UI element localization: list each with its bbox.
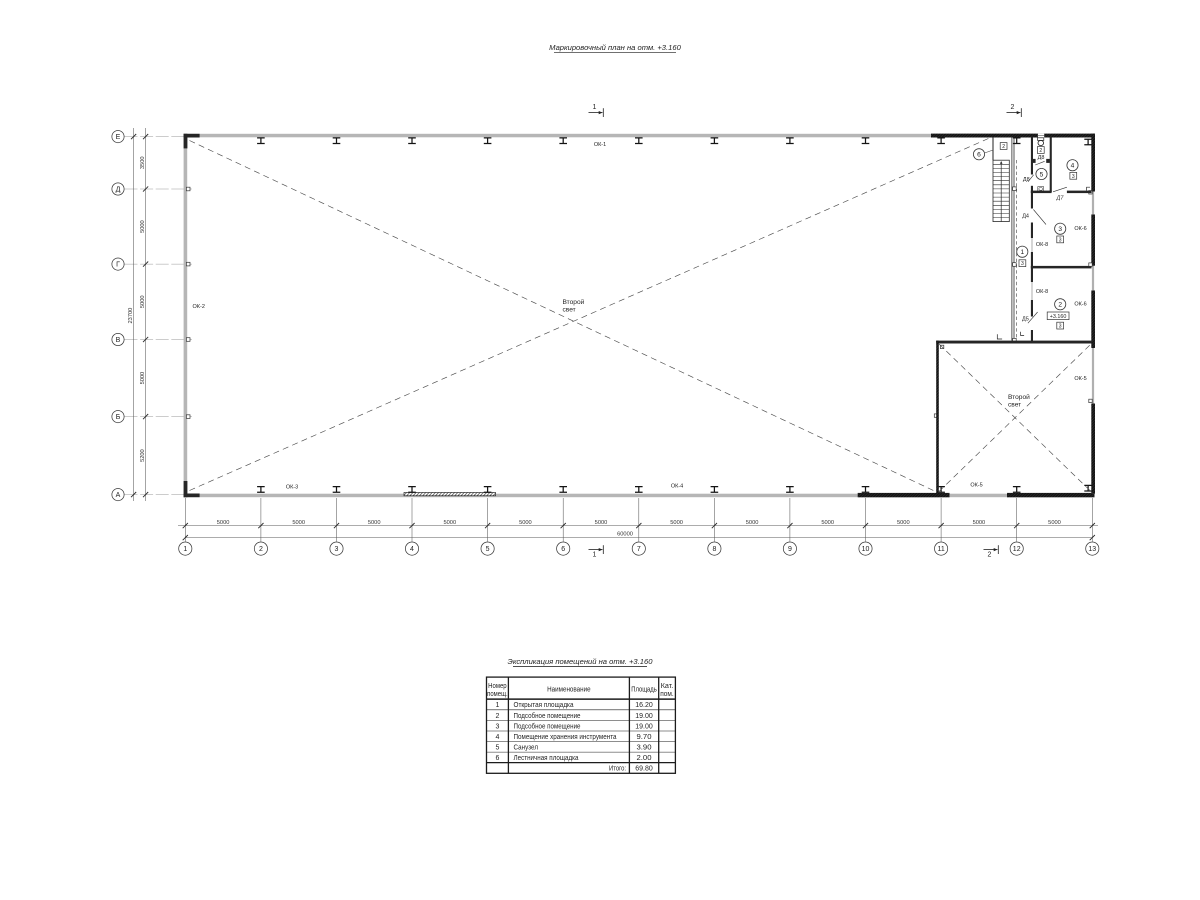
svg-text:Подсобное помещение: Подсобное помещение — [514, 722, 581, 730]
svg-text:3: 3 — [1072, 174, 1075, 180]
svg-text:5000: 5000 — [897, 520, 910, 526]
svg-text:3.90: 3.90 — [637, 745, 652, 752]
svg-text:5000: 5000 — [140, 372, 146, 385]
svg-text:Кат.: Кат. — [661, 683, 674, 690]
svg-text:Д8: Д8 — [1023, 177, 1030, 183]
svg-text:6: 6 — [561, 546, 565, 553]
svg-text:7: 7 — [637, 546, 641, 553]
svg-text:Г: Г — [116, 262, 120, 269]
svg-text:2: 2 — [1011, 104, 1015, 111]
svg-text:12: 12 — [1013, 546, 1021, 553]
svg-text:Д8: Д8 — [1038, 155, 1045, 161]
svg-text:свет: свет — [1008, 402, 1021, 409]
svg-text:5000: 5000 — [217, 520, 230, 526]
svg-text:3500: 3500 — [140, 156, 146, 169]
svg-text:Второй: Второй — [1008, 393, 1030, 401]
svg-text:ОК-5: ОК-5 — [1074, 376, 1086, 382]
svg-text:23700: 23700 — [128, 308, 134, 324]
svg-text:4: 4 — [1071, 163, 1075, 170]
svg-text:4: 4 — [410, 546, 414, 553]
svg-text:9.70: 9.70 — [637, 734, 652, 741]
svg-text:свет: свет — [563, 307, 576, 314]
svg-text:Санузел: Санузел — [514, 745, 539, 752]
svg-text:16.20: 16.20 — [635, 702, 653, 709]
svg-text:3: 3 — [1021, 261, 1024, 267]
svg-text:Второй: Второй — [563, 298, 585, 306]
svg-text:6: 6 — [495, 755, 499, 762]
svg-text:ОК-5: ОК-5 — [970, 482, 982, 488]
svg-text:ОК-8: ОК-8 — [1036, 242, 1048, 248]
svg-text:2: 2 — [1039, 148, 1042, 154]
svg-text:2: 2 — [259, 546, 263, 553]
svg-text:19.00: 19.00 — [635, 723, 653, 730]
svg-text:Открытая площадка: Открытая площадка — [514, 702, 574, 709]
svg-text:3: 3 — [1059, 324, 1062, 330]
svg-text:Маркировочный план на отм. +3.: Маркировочный план на отм. +3.160 — [549, 43, 681, 52]
svg-text:+3.160: +3.160 — [1050, 314, 1067, 320]
svg-text:13: 13 — [1088, 546, 1096, 553]
svg-text:10: 10 — [862, 546, 870, 553]
svg-text:Площадь: Площадь — [631, 687, 657, 694]
svg-text:ОК-3: ОК-3 — [286, 485, 298, 491]
svg-text:2: 2 — [1002, 144, 1005, 150]
svg-text:ОК-6: ОК-6 — [1074, 226, 1086, 232]
svg-text:Д5: Д5 — [1022, 316, 1029, 322]
svg-text:8: 8 — [712, 546, 716, 553]
svg-text:ОК-6: ОК-6 — [1074, 302, 1086, 308]
svg-text:60000: 60000 — [617, 531, 633, 537]
svg-text:Номер: Номер — [488, 683, 507, 690]
svg-text:1: 1 — [593, 104, 597, 111]
svg-text:5000: 5000 — [519, 520, 532, 526]
svg-text:ОК-4: ОК-4 — [671, 483, 683, 489]
svg-text:1: 1 — [183, 546, 187, 553]
svg-text:1: 1 — [1020, 249, 1024, 256]
svg-text:3: 3 — [335, 546, 339, 553]
svg-text:2: 2 — [495, 713, 499, 720]
svg-text:Д7: Д7 — [1056, 196, 1065, 202]
svg-text:Экспликация помещений на отм.: Экспликация помещений на отм. +3.160 — [508, 657, 654, 666]
svg-text:3: 3 — [495, 723, 499, 730]
svg-text:5000: 5000 — [1048, 520, 1061, 526]
svg-text:2: 2 — [1058, 302, 1062, 309]
svg-text:Лестничная площадка: Лестничная площадка — [514, 755, 579, 762]
svg-text:5000: 5000 — [595, 520, 608, 526]
svg-text:4: 4 — [495, 734, 499, 741]
svg-text:5000: 5000 — [140, 220, 146, 233]
svg-text:Наименование: Наименование — [547, 687, 591, 694]
svg-text:Итого:: Итого: — [609, 766, 626, 773]
svg-text:Помещение хранения инструмента: Помещение хранения инструмента — [514, 734, 617, 741]
svg-text:Подсобное помещение: Подсобное помещение — [514, 712, 581, 720]
svg-text:6: 6 — [977, 152, 981, 159]
svg-text:Б: Б — [116, 414, 121, 421]
svg-text:5000: 5000 — [443, 520, 456, 526]
svg-text:2: 2 — [988, 552, 992, 559]
svg-text:ОК-2: ОК-2 — [193, 304, 205, 310]
svg-text:5000: 5000 — [292, 520, 305, 526]
svg-text:помещ.: помещ. — [487, 691, 508, 698]
svg-text:5: 5 — [495, 745, 499, 752]
svg-text:5200: 5200 — [140, 449, 146, 462]
svg-text:69.80: 69.80 — [635, 766, 653, 773]
svg-text:5000: 5000 — [368, 520, 381, 526]
svg-text:ОК-1: ОК-1 — [594, 142, 606, 148]
svg-text:пом.: пом. — [660, 691, 674, 698]
svg-text:ОК-8: ОК-8 — [1036, 289, 1048, 295]
svg-text:В: В — [116, 337, 121, 344]
svg-text:Е: Е — [116, 134, 121, 141]
svg-text:2.00: 2.00 — [637, 755, 652, 762]
svg-text:3: 3 — [1059, 237, 1062, 243]
svg-text:А: А — [116, 492, 121, 499]
svg-text:1: 1 — [495, 702, 499, 709]
svg-text:3: 3 — [1058, 226, 1062, 233]
svg-text:5000: 5000 — [973, 520, 986, 526]
svg-text:Д: Д — [116, 186, 121, 193]
svg-text:5000: 5000 — [821, 520, 834, 526]
svg-text:1: 1 — [593, 552, 597, 559]
svg-text:5000: 5000 — [670, 520, 683, 526]
svg-text:5000: 5000 — [140, 295, 146, 308]
svg-text:5: 5 — [1040, 171, 1044, 178]
svg-text:5000: 5000 — [746, 520, 759, 526]
svg-text:5: 5 — [486, 546, 490, 553]
svg-text:Д4: Д4 — [1022, 214, 1029, 220]
svg-text:9: 9 — [788, 546, 792, 553]
svg-text:11: 11 — [937, 546, 944, 553]
svg-text:19.00: 19.00 — [635, 713, 653, 720]
